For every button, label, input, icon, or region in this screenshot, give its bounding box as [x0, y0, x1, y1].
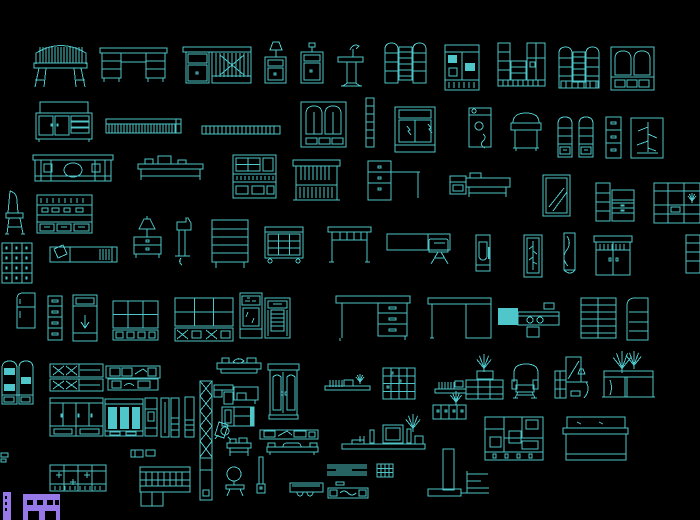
pedestal-basin[interactable]	[338, 45, 363, 86]
arch-window-cabinet[interactable]	[301, 102, 346, 147]
tall-shelf[interactable]	[581, 298, 616, 338]
wall-cabinet-tv[interactable]	[387, 234, 450, 264]
grid-top-wardrobe[interactable]	[594, 236, 632, 275]
large-cube-shelf[interactable]	[175, 298, 233, 341]
edge-shelf-unit[interactable]	[686, 235, 700, 273]
arched-shelf-c[interactable]	[558, 117, 593, 157]
ladder-wardrobe[interactable]	[265, 298, 290, 338]
bed-elevation-1[interactable]	[50, 364, 103, 377]
display-case[interactable]	[524, 235, 542, 277]
ornate-console[interactable]	[33, 155, 113, 181]
file-cabinet[interactable]	[606, 117, 621, 158]
console-table[interactable]	[328, 227, 371, 262]
media-bench[interactable]	[267, 443, 318, 455]
drape-panel[interactable]	[564, 233, 575, 273]
fridge[interactable]	[17, 293, 35, 328]
side-cabinet-small[interactable]	[450, 176, 466, 194]
two-column-unit[interactable]	[596, 183, 634, 221]
spindle-canopy-bed[interactable]	[293, 160, 340, 200]
grid-rail[interactable]	[106, 119, 181, 133]
decor-shelf[interactable]	[217, 358, 261, 373]
door-shelf-unit[interactable]	[222, 407, 254, 426]
tall-panel-1[interactable]	[161, 398, 169, 437]
jug-stand[interactable]	[175, 218, 191, 265]
sideboard-mirrorback[interactable]	[36, 102, 92, 142]
garden-bench[interactable]	[34, 46, 87, 88]
cube-shelf[interactable]	[113, 301, 158, 340]
modular-wall-unit[interactable]	[498, 43, 545, 86]
tall-cabinet-1[interactable]	[145, 398, 157, 436]
kitchen-counter[interactable]	[498, 303, 559, 337]
column-shaft[interactable]	[200, 458, 212, 500]
mondrian-cabinet[interactable]	[485, 417, 543, 460]
mixed-cabinet[interactable]	[445, 45, 479, 90]
low-table-items[interactable]	[138, 156, 203, 180]
bookcase-on-legs[interactable]	[212, 220, 248, 268]
cross-grid-cabinet[interactable]	[50, 465, 106, 491]
chest-with-desk[interactable]	[368, 161, 420, 200]
stem-nightstand[interactable]	[301, 43, 323, 83]
pedestal-desk[interactable]	[336, 296, 410, 341]
arched-shelf-a[interactable]	[385, 43, 426, 83]
sofa-shelf-2[interactable]	[108, 379, 158, 390]
round-mirror-stand[interactable]	[226, 467, 244, 496]
cube-grid-box[interactable]	[383, 368, 415, 399]
drawer-tower[interactable]	[48, 296, 62, 340]
tall-panel-2[interactable]	[171, 398, 179, 437]
four-door-wardrobe[interactable]	[50, 398, 103, 436]
window-hutch[interactable]	[233, 155, 276, 198]
tv-wall-unit[interactable]	[342, 414, 425, 449]
filled-three-door-wardrobe[interactable]	[105, 399, 143, 436]
arched-shelf-b[interactable]	[559, 47, 599, 88]
floor-lamp[interactable]	[257, 457, 265, 493]
round-top-stool[interactable]	[511, 113, 541, 151]
round-corner-cabinet[interactable]	[627, 298, 648, 340]
desk-cabinet[interactable]	[183, 47, 251, 83]
hook-cabinet[interactable]	[290, 483, 323, 496]
media-shelf[interactable]	[260, 430, 318, 439]
l-desk[interactable]	[214, 385, 233, 404]
grid-locker[interactable]	[2, 243, 32, 283]
sofa-shelf-1[interactable]	[106, 366, 160, 378]
tick-rows[interactable]	[328, 464, 366, 476]
panel-stand[interactable]	[428, 449, 461, 496]
fridge-dispenser[interactable]	[73, 295, 97, 341]
island-with-plant[interactable]	[602, 351, 655, 397]
mirror-cabinet[interactable]	[395, 107, 435, 152]
tall-panel-3[interactable]	[185, 397, 194, 437]
low-cabinet-items[interactable]	[328, 482, 368, 498]
bar-counter[interactable]	[563, 417, 628, 460]
wall-system[interactable]	[654, 183, 700, 223]
coat-rack-panel[interactable]	[631, 118, 663, 158]
truss-column[interactable]	[200, 381, 212, 458]
small-box-b[interactable]	[146, 450, 155, 456]
sideboard-with-plant[interactable]	[433, 391, 466, 419]
accent-strip[interactable]	[3, 492, 11, 520]
plain-desk[interactable]	[428, 298, 491, 338]
armchair-front[interactable]	[512, 364, 538, 398]
small-box-a[interactable]	[131, 450, 143, 457]
narrow-cabinet[interactable]	[476, 235, 490, 271]
vending-cabinet[interactable]	[240, 293, 262, 338]
lamp-cabinet[interactable]	[265, 42, 286, 83]
side-chair-profile[interactable]	[5, 191, 25, 234]
tiny-glyph[interactable]	[1, 453, 8, 462]
day-bench[interactable]	[466, 173, 510, 197]
small-table[interactable]	[234, 387, 258, 404]
hutch-cabinet[interactable]	[37, 195, 92, 233]
accent-cabinet[interactable]	[23, 494, 60, 520]
dense-kitchen-cabinet[interactable]	[140, 467, 190, 506]
low-counter[interactable]	[50, 245, 117, 262]
open-desk[interactable]	[100, 48, 167, 82]
bracket-profile[interactable]	[461, 471, 489, 493]
drawer-cart[interactable]	[265, 227, 303, 263]
dressing-table[interactable]	[555, 357, 588, 398]
book-shelf-right[interactable]	[435, 381, 466, 393]
ladder-strip[interactable]	[366, 98, 374, 147]
cad-canvas[interactable]	[0, 0, 700, 520]
counter-with-faucet[interactable]	[466, 354, 503, 399]
washing-machine[interactable]	[469, 108, 491, 148]
wide-arch-cabinet[interactable]	[611, 47, 654, 90]
lamp-nightstand[interactable]	[134, 216, 161, 258]
drawing-area[interactable]	[0, 0, 700, 520]
filled-arch-wardrobe[interactable]	[2, 361, 33, 404]
wall-mirror[interactable]	[543, 175, 570, 216]
desk-with-items[interactable]	[227, 438, 251, 456]
segmented-rail[interactable]	[202, 126, 280, 134]
waffle-grid[interactable]	[377, 464, 393, 477]
classic-wardrobe[interactable]	[268, 364, 299, 419]
book-wall-shelf[interactable]	[325, 374, 370, 390]
bed-elevation-2[interactable]	[50, 379, 103, 391]
easel-stool[interactable]	[215, 422, 231, 440]
